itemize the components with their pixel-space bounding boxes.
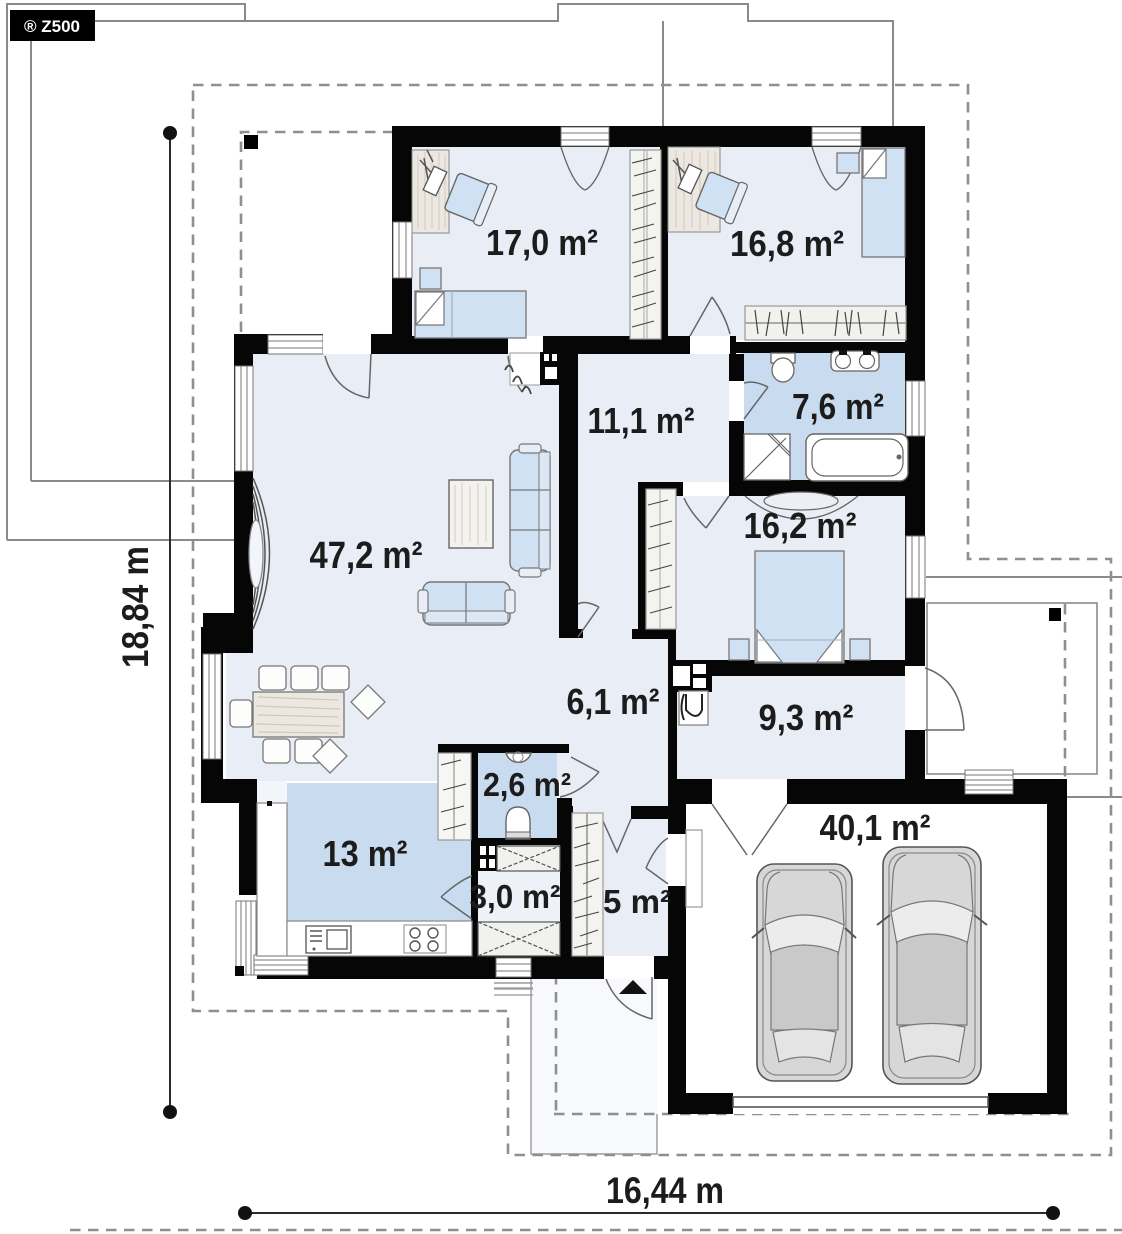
svg-text:3,0 m²: 3,0 m² bbox=[470, 878, 561, 915]
svg-text:® Z500: ® Z500 bbox=[24, 17, 80, 36]
svg-text:17,0 m²: 17,0 m² bbox=[486, 222, 598, 263]
svg-text:47,2 m²: 47,2 m² bbox=[310, 535, 423, 577]
svg-text:18,84 m: 18,84 m bbox=[115, 546, 156, 668]
svg-text:13 m²: 13 m² bbox=[323, 833, 408, 874]
svg-text:16,8 m²: 16,8 m² bbox=[730, 223, 844, 264]
svg-text:5 m²: 5 m² bbox=[603, 883, 671, 920]
svg-text:40,1 m²: 40,1 m² bbox=[820, 807, 931, 848]
svg-text:7,6 m²: 7,6 m² bbox=[792, 386, 884, 427]
svg-text:6,1 m²: 6,1 m² bbox=[567, 681, 660, 722]
svg-text:16,44 m: 16,44 m bbox=[606, 1170, 724, 1211]
svg-text:2,6 m²: 2,6 m² bbox=[483, 766, 571, 803]
svg-text:16,2 m²: 16,2 m² bbox=[744, 505, 857, 546]
svg-text:9,3 m²: 9,3 m² bbox=[759, 697, 854, 738]
svg-text:11,1 m²: 11,1 m² bbox=[588, 400, 695, 441]
